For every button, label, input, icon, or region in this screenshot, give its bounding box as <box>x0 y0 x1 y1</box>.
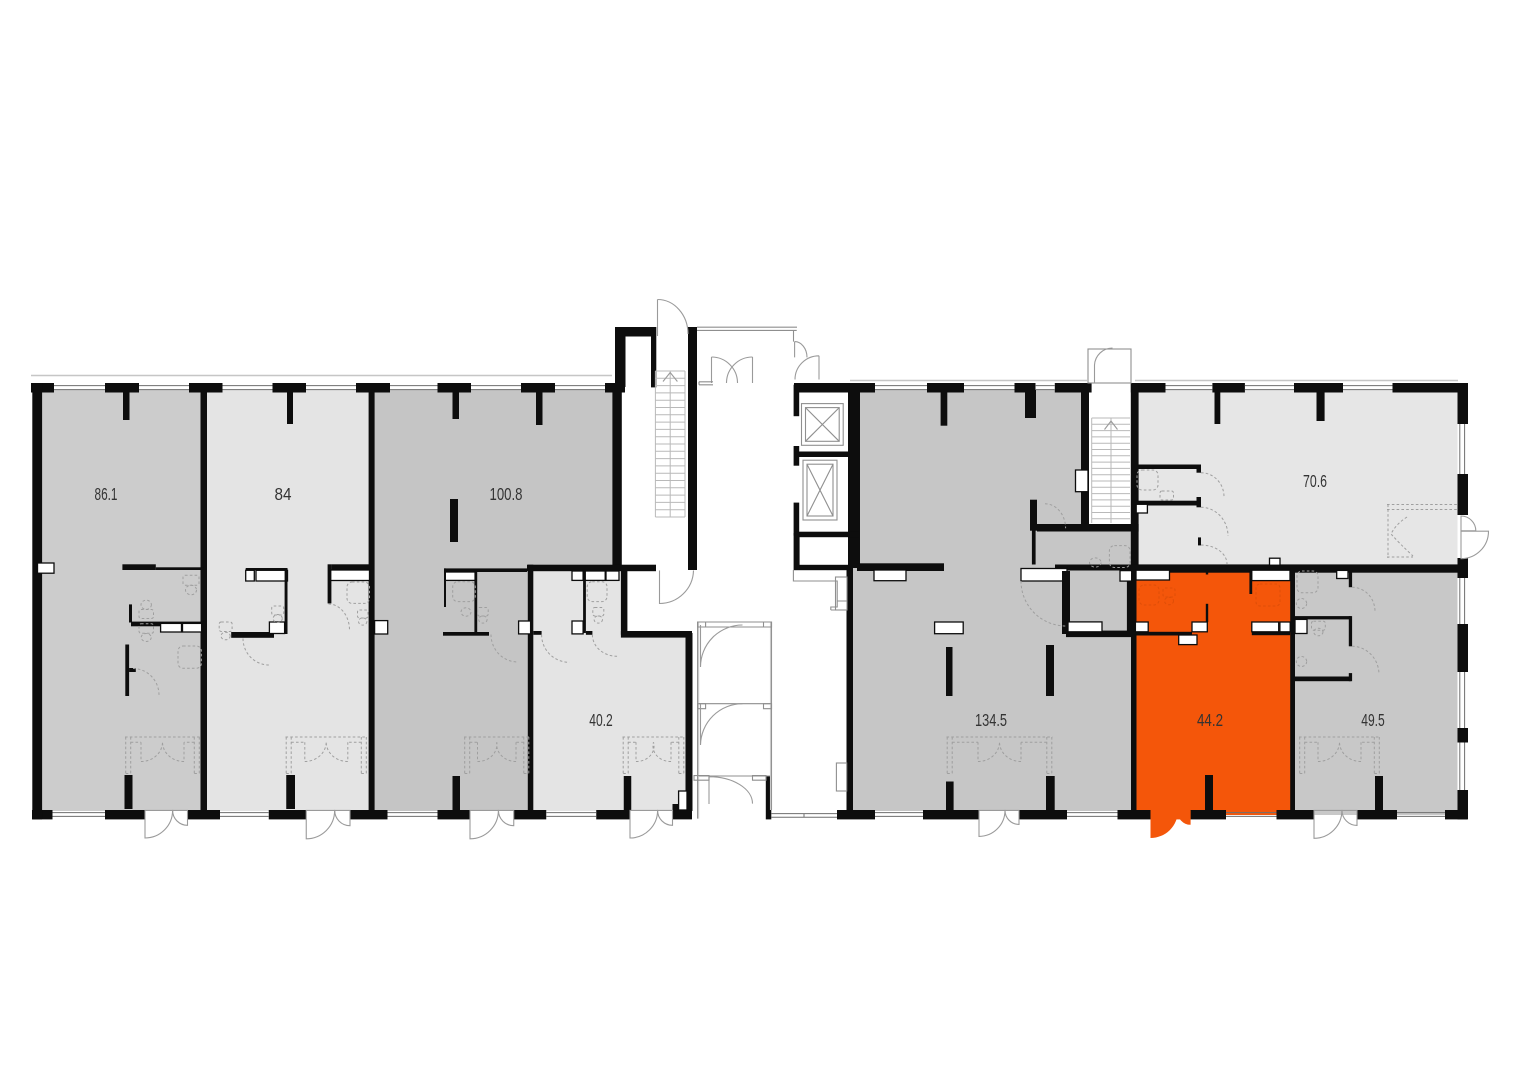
svg-text:70.6: 70.6 <box>1303 471 1327 491</box>
svg-text:86.1: 86.1 <box>95 484 118 504</box>
svg-text:44.2: 44.2 <box>1197 710 1223 730</box>
svg-text:100.8: 100.8 <box>490 484 523 504</box>
svg-text:84: 84 <box>275 484 292 504</box>
svg-text:49.5: 49.5 <box>1361 710 1385 730</box>
svg-text:134.5: 134.5 <box>975 710 1007 730</box>
svg-text:40.2: 40.2 <box>589 710 613 730</box>
